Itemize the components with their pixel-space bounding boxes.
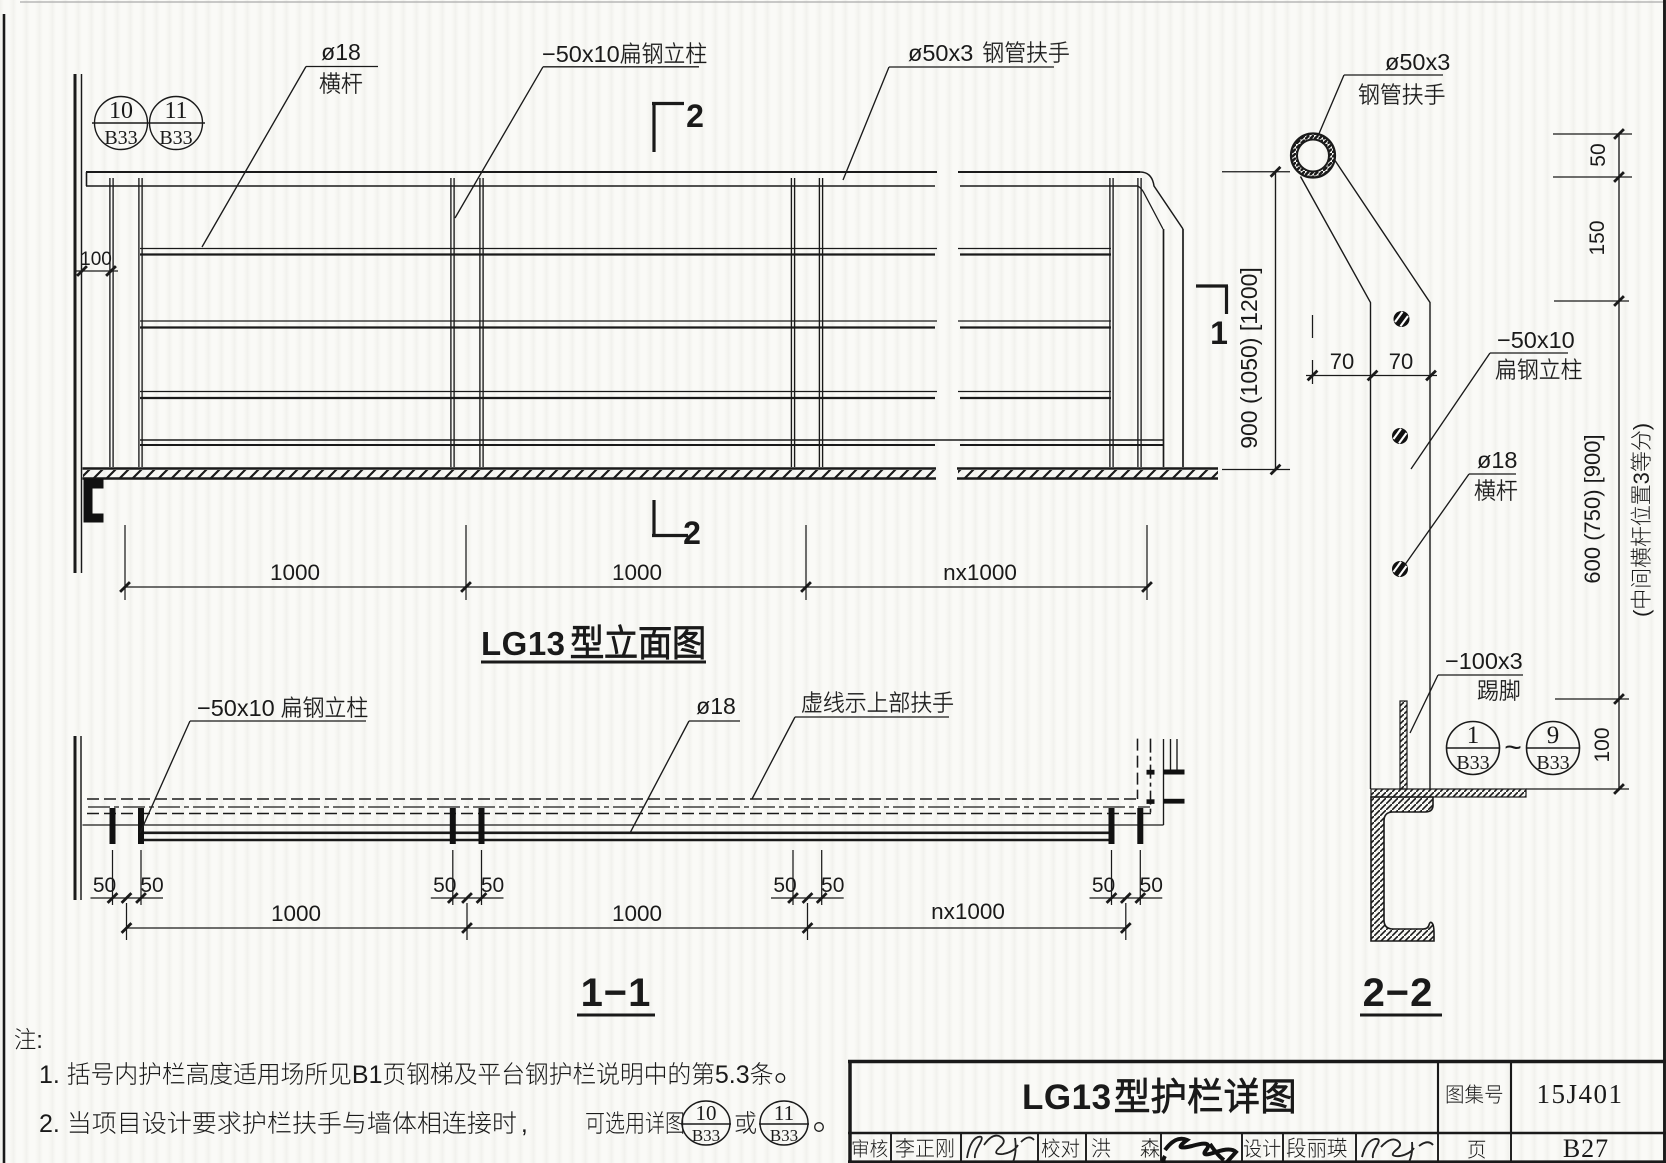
svg-text:1000: 1000	[271, 901, 321, 926]
svg-text:−50x10: −50x10	[542, 41, 620, 67]
svg-text:LG13: LG13	[1022, 1078, 1112, 1117]
svg-text:50: 50	[481, 874, 504, 897]
svg-text:(: (	[1629, 609, 1654, 617]
svg-text:1−1: 1−1	[581, 971, 652, 1015]
svg-text:50: 50	[433, 874, 456, 897]
svg-text:10: 10	[109, 98, 133, 124]
svg-text:50: 50	[93, 874, 116, 897]
svg-text:B33: B33	[104, 127, 137, 149]
svg-text:ø50x3: ø50x3	[1385, 49, 1450, 75]
svg-text:B33: B33	[159, 127, 192, 149]
svg-text:1.: 1.	[39, 1061, 60, 1089]
svg-text:1: 1	[1467, 722, 1480, 749]
svg-text:ø18: ø18	[1477, 447, 1518, 473]
svg-text:50: 50	[140, 874, 163, 897]
svg-text:5.3: 5.3	[715, 1061, 750, 1089]
svg-text:ø50x3: ø50x3	[908, 40, 973, 66]
svg-text:11: 11	[164, 98, 187, 124]
svg-text:11: 11	[774, 1101, 794, 1125]
svg-text:1000: 1000	[612, 901, 662, 926]
svg-text:10: 10	[696, 1101, 717, 1125]
svg-text:2.: 2.	[39, 1110, 60, 1138]
svg-text:50: 50	[1587, 143, 1610, 166]
svg-text:~: ~	[1504, 731, 1522, 764]
svg-text:100: 100	[1591, 727, 1614, 762]
svg-text:): )	[1629, 423, 1654, 430]
svg-text:B33: B33	[692, 1126, 720, 1145]
svg-text:2−2: 2−2	[1363, 971, 1434, 1015]
svg-text:nx1000: nx1000	[943, 560, 1017, 585]
svg-text:2: 2	[686, 98, 704, 134]
svg-text:2: 2	[683, 515, 701, 551]
svg-text:50: 50	[773, 874, 796, 897]
svg-text::: :	[36, 1027, 43, 1054]
svg-text:1: 1	[1210, 315, 1228, 351]
svg-text:50: 50	[1092, 874, 1115, 897]
svg-text:3: 3	[1629, 472, 1654, 484]
svg-text:−100x3: −100x3	[1445, 648, 1523, 674]
svg-text:900 (1050) [1200]: 900 (1050) [1200]	[1236, 267, 1262, 449]
svg-text:,: ,	[521, 1110, 528, 1138]
svg-text:1000: 1000	[612, 560, 662, 585]
svg-text:50: 50	[821, 874, 844, 897]
svg-text:−50x10: −50x10	[1497, 327, 1575, 353]
svg-text:B27: B27	[1563, 1134, 1609, 1163]
svg-text:B33: B33	[1536, 752, 1569, 774]
svg-text:1000: 1000	[270, 560, 320, 585]
svg-text:600 (750) [900]: 600 (750) [900]	[1580, 434, 1605, 583]
svg-text:15J401: 15J401	[1536, 1079, 1623, 1109]
svg-text:70: 70	[1389, 349, 1413, 374]
svg-text:50: 50	[1140, 874, 1163, 897]
svg-text:B33: B33	[770, 1126, 798, 1145]
svg-text:−50x10: −50x10	[197, 695, 275, 721]
svg-text:9: 9	[1547, 722, 1560, 749]
svg-text:B1: B1	[352, 1061, 383, 1089]
svg-text:70: 70	[1330, 349, 1354, 374]
svg-text:ø18: ø18	[696, 693, 736, 719]
svg-text:ø18: ø18	[321, 39, 361, 65]
svg-text:B33: B33	[1456, 752, 1489, 774]
svg-text:150: 150	[1586, 220, 1609, 255]
svg-text:LG13: LG13	[481, 625, 566, 662]
svg-text:nx1000: nx1000	[931, 899, 1005, 924]
